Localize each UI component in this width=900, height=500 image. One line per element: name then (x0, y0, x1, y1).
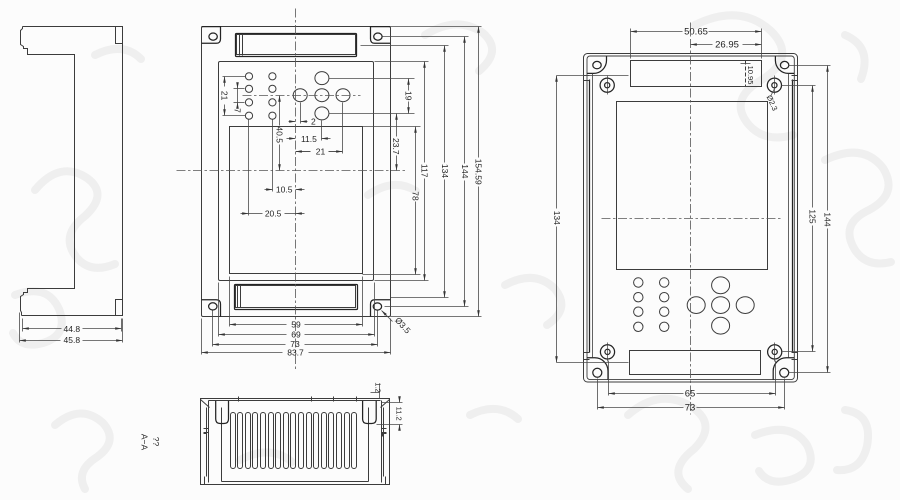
svg-text:23.7: 23.7 (391, 138, 401, 155)
svg-text:1.2: 1.2 (374, 382, 383, 392)
svg-text:125: 125 (807, 209, 817, 223)
svg-text:117: 117 (419, 164, 429, 178)
svg-text:11.5: 11.5 (301, 134, 317, 144)
svg-text:26.95: 26.95 (715, 40, 739, 51)
svg-text:59: 59 (291, 320, 301, 330)
svg-text:11.2: 11.2 (395, 407, 404, 421)
svg-text:7: 7 (232, 108, 242, 113)
svg-text:78: 78 (411, 191, 421, 201)
svg-text:45.8: 45.8 (64, 335, 81, 345)
svg-text:144: 144 (460, 164, 470, 178)
svg-text:10.5: 10.5 (276, 184, 293, 194)
svg-text:44.8: 44.8 (64, 324, 81, 334)
svg-text:134: 134 (440, 164, 450, 178)
svg-text:A−A: A−A (140, 434, 150, 451)
svg-text:134: 134 (552, 211, 562, 225)
svg-text:10.95: 10.95 (746, 66, 755, 85)
svg-text:20.5: 20.5 (265, 208, 282, 218)
svg-text:50.65: 50.65 (684, 27, 708, 38)
svg-text:154.59: 154.59 (473, 159, 483, 185)
svg-text:2: 2 (311, 117, 316, 127)
svg-text:40.5: 40.5 (275, 126, 285, 143)
svg-text:83.7: 83.7 (287, 348, 304, 358)
svg-text:21: 21 (316, 147, 326, 157)
svg-text:21: 21 (220, 91, 230, 101)
svg-text:73: 73 (685, 403, 696, 414)
svg-text:??: ?? (151, 437, 161, 447)
svg-text:144: 144 (822, 212, 832, 226)
svg-text:65: 65 (685, 389, 696, 400)
svg-text:19: 19 (403, 91, 413, 101)
